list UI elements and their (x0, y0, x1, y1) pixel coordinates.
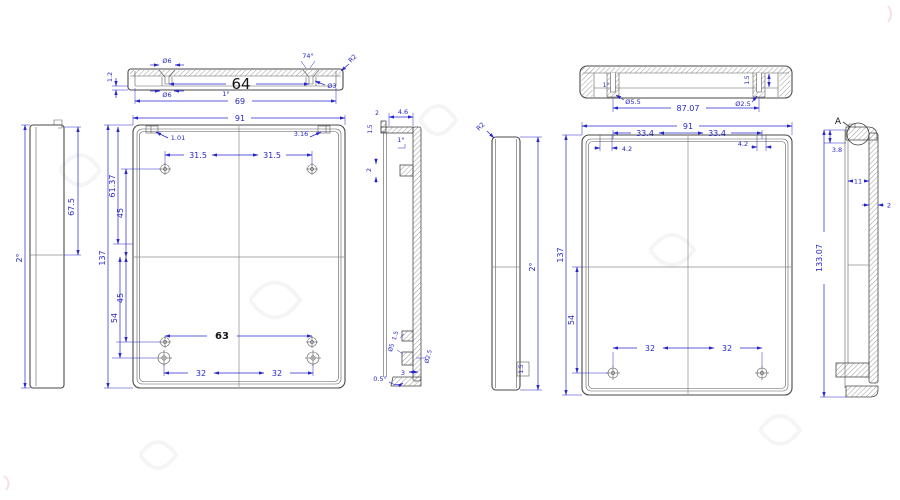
flange (381, 127, 413, 133)
dim-lip-height: 1.5 (368, 124, 374, 134)
dim-bottom-dx-left: 32 (196, 369, 206, 378)
hole (305, 350, 321, 366)
dim-draft-angle: 1° (603, 83, 610, 89)
dim-boss-spacing: 87.07 (677, 104, 700, 113)
dim-lip-width: 2 (375, 111, 379, 117)
dim-upper-height: 67.5 (67, 198, 76, 216)
bottom-cap (846, 386, 878, 397)
dim-floor-draft: 0.5° (373, 375, 387, 383)
dim-overall-height: 137 (556, 247, 565, 262)
dim-clip-right: 3.16 (294, 130, 308, 138)
dim-bottom-dx-left: 32 (645, 344, 655, 353)
dim-floor-thickness: 1.2 (106, 72, 114, 82)
dim-bottom-dx-right: 32 (722, 344, 732, 353)
hole (755, 366, 769, 380)
dim-overall-height: 133.07 (815, 244, 824, 272)
hole (306, 336, 318, 348)
dim-boss-b: Ø5 (387, 342, 396, 352)
dim-hole-dx-right: 31.5 (263, 151, 281, 160)
dim-clip-right: 4.2 (738, 140, 748, 148)
view-front-right: 91 33.4 33.4 4.2 4.2 137 54 32 32 (556, 122, 792, 395)
clip-right (318, 126, 330, 133)
dim-flange-width: 4.6 (398, 108, 408, 116)
dim-draft-angle: 2° (15, 253, 24, 262)
dim-mid-upper: 45 (116, 208, 125, 218)
dim-hole-spacing: 64 (231, 75, 250, 93)
view-top-section-left: Ø6 Ø6 1.2 64 1° 69 74° Ø3 R2 (106, 52, 358, 106)
wall (413, 127, 421, 381)
dim-cs-bottom-dia: Ø6 (162, 91, 171, 99)
dim-boss-a: 1.5 (392, 330, 400, 341)
dim-hole-dx-left: 33.4 (636, 129, 654, 138)
dim-hole-dx-left: 31.5 (189, 151, 207, 160)
dim-cs-angle: 74° (302, 52, 314, 60)
dim-hole-dx-right: 33.4 (708, 129, 726, 138)
view-section-mid: 4.6 2 1.5 1° 2 1.5 Ø5 Ø2.5 3 0.5° (365, 108, 434, 386)
hole (156, 350, 172, 366)
dim-overall-width: 91 (683, 122, 693, 131)
dim-clip-left: 1.01 (171, 134, 185, 142)
hole (159, 336, 171, 348)
dim-lower-height: 54 (567, 315, 576, 325)
dim-corner-radius: R2 (347, 53, 359, 65)
dim-inner-width: 11 (854, 178, 862, 186)
dim-inner-width: 69 (235, 97, 245, 106)
dim-overall-width: 91 (235, 114, 245, 123)
dim-corner-radius: R2 (475, 121, 487, 133)
ledge (400, 165, 413, 176)
wall (869, 133, 878, 383)
dim-clip-left: 4.2 (622, 145, 632, 153)
dim-cap-height: 3.8 (832, 146, 842, 154)
view-top-section-right: 1° Ø5.5 87.07 Ø2.5 1.5 (580, 66, 792, 113)
dim-rib-thickness: 2 (365, 168, 373, 172)
boss (836, 363, 869, 377)
boss-upper (402, 331, 413, 341)
dim-upper-height: 61.37 (108, 175, 117, 198)
dim-cs-top-dia: Ø6 (162, 57, 171, 65)
dim-boss-label: 1.5 (519, 364, 525, 374)
dim-wall-thickness: 2 (887, 202, 891, 210)
dim-hole-depth: 1.5 (745, 75, 751, 85)
boss-right (753, 73, 765, 97)
boss-lower (402, 352, 413, 365)
dim-overall-height: 137 (98, 250, 107, 265)
hole (606, 366, 620, 380)
dim-hole-dia: Ø2.5 (735, 100, 750, 108)
dim-boss-c: Ø2.5 (423, 349, 433, 364)
dim-draft-angle: 2° (528, 262, 537, 271)
dim-mid-lower: 45 (116, 293, 125, 303)
detail-label: A (835, 117, 842, 127)
dim-boss-dia: Ø5.5 (625, 98, 640, 106)
view-front-left: 91 1.01 3.16 31.5 31.5 137 61.37 45 45 5… (98, 114, 345, 388)
dim-hole-dia: Ø3 (327, 82, 336, 90)
dim-draft-angle: 1° (397, 136, 404, 144)
clip-hook (54, 120, 62, 128)
view-right-section: A 3.8 11 2 133.07 (815, 117, 891, 397)
dim-boss-height: 3 (401, 369, 405, 377)
view-right-profile: 1.5 R2 2° (475, 121, 542, 390)
drawing-canvas: 2° 67.5 Ø6 Ø6 1.2 64 1° 69 74° Ø3 R2 (0, 0, 900, 500)
dim-bottom-dx-right: 32 (272, 369, 282, 378)
dim-draft-angle: 1° (222, 90, 229, 98)
dim-lower-height: 54 (110, 313, 119, 323)
dim-boss-spacing: 63 (215, 331, 229, 342)
